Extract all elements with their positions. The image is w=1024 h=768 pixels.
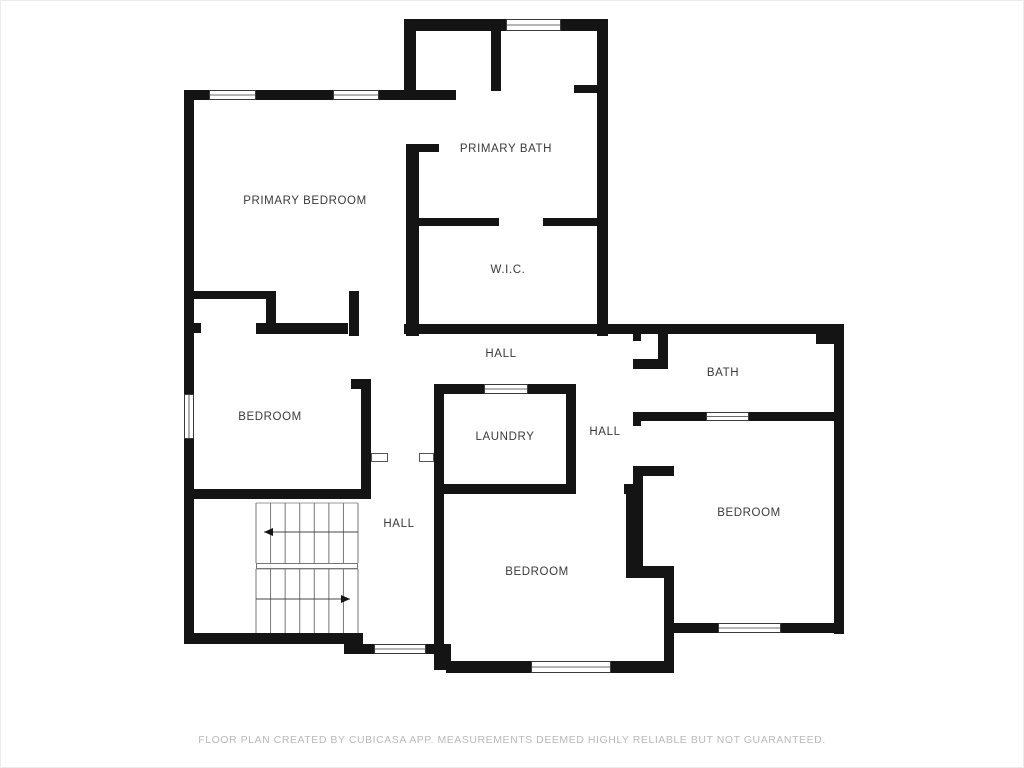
wall-segment (633, 359, 668, 369)
wall-segment (664, 566, 674, 666)
wall-segment (406, 144, 419, 336)
wall-segment (633, 412, 706, 421)
wall-segment (191, 489, 371, 499)
wall-segment (256, 323, 348, 334)
wall-segment (434, 384, 444, 646)
wall-segment (633, 412, 641, 426)
wall-segment (379, 90, 456, 100)
wall-segment (184, 633, 356, 644)
door-marker (372, 454, 388, 462)
wall-segment (446, 661, 531, 673)
room-label-wic: W.I.C. (491, 264, 526, 276)
wall-segment (434, 384, 484, 394)
room-label-hall-bottom: HALL (383, 518, 414, 530)
wall-segment (633, 329, 641, 341)
wall-segment (194, 291, 274, 299)
wall-segment (404, 324, 844, 334)
wall-segment (434, 484, 576, 494)
room-label-hall-right: HALL (589, 426, 620, 438)
wall-segment (491, 27, 501, 91)
room-label-primary-bath: PRIMARY BATH (460, 143, 552, 155)
wall-segment (834, 334, 844, 634)
door-marker (420, 454, 434, 462)
wall-segment (434, 644, 451, 670)
wall-segment (349, 291, 359, 336)
wall-segment (611, 661, 674, 673)
wall-segment (674, 623, 718, 633)
wall-segment (190, 323, 201, 333)
room-label-laundry: LAUNDRY (476, 431, 535, 443)
wall-segment (361, 384, 371, 499)
footer-disclaimer: FLOOR PLAN CREATED BY CUBICASA APP. MEAS… (1, 734, 1023, 746)
wall-segment (256, 90, 333, 100)
floor-plan-page: PRIMARY BEDROOMPRIMARY BATHW.I.C.HALLBAT… (0, 0, 1024, 768)
wall-segment (574, 85, 597, 93)
floor-plan-drawing: PRIMARY BEDROOMPRIMARY BATHW.I.C.HALLBAT… (1, 1, 1023, 767)
wall-segment (404, 19, 416, 99)
wall-segment (566, 384, 576, 484)
wall-segment (414, 218, 499, 226)
wall-segment (543, 218, 608, 226)
stair-direction-arrowhead (264, 528, 273, 536)
wall-segment (626, 484, 636, 578)
room-label-bedroom-right: BEDROOM (717, 507, 781, 519)
wall-segment (597, 19, 608, 336)
wall-segment (184, 439, 194, 644)
room-label-hall-top: HALL (485, 348, 516, 360)
room-label-bedroom-left: BEDROOM (238, 411, 302, 423)
wall-segment (419, 144, 439, 152)
room-label-primary-bedroom: PRIMARY BEDROOM (243, 195, 367, 207)
wall-segment (781, 623, 838, 633)
room-label-bath: BATH (707, 367, 739, 379)
wall-segment (359, 644, 374, 654)
wall-segment (404, 19, 506, 31)
room-label-bedroom-bottom: BEDROOM (505, 566, 569, 578)
wall-segment (184, 90, 194, 394)
stair-landing-line (257, 564, 358, 569)
wall-segment (749, 412, 834, 421)
stair-direction-arrowhead (341, 595, 350, 603)
